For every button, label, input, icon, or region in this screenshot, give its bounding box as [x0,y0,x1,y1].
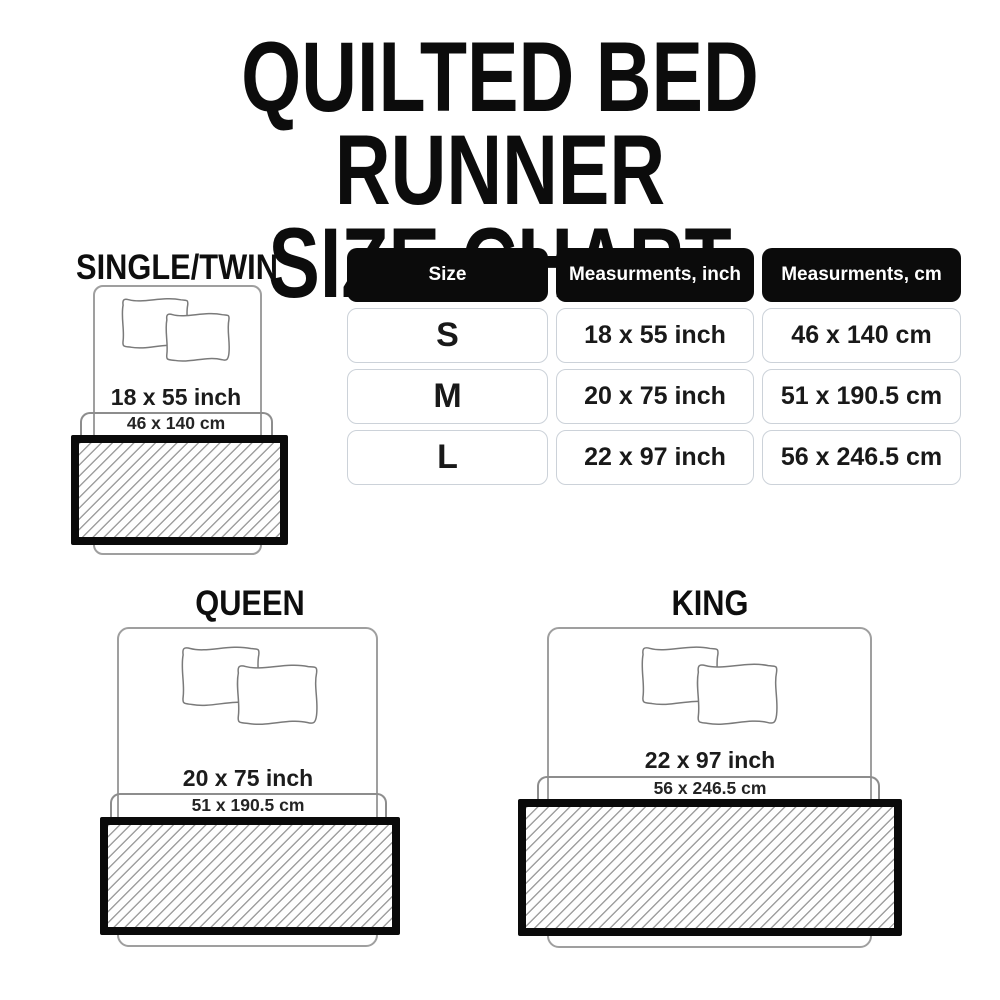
bed-runner [71,435,288,545]
queen-label: QUEEN [140,584,360,624]
header-cm-cell: Measurments, cm [762,248,961,302]
pillow-icon [691,661,783,728]
cm-measurement-label: 46 x 140 cm [56,414,296,433]
pillow-icon [231,662,323,728]
row-l-size-cell: L [347,430,548,485]
single-twin-diagram: SINGLE/TWIN 18 x 55 inch 46 x 140 cm [40,246,310,576]
row-s-size-cell: S [347,308,548,363]
bed-runner [518,799,902,936]
row-l-inch-cell: 22 x 97 inch [556,430,754,485]
header-size-cell: Size [347,248,548,302]
row-s-cm-cell: 46 x 140 cm [762,308,961,363]
size-chart-infographic: QUILTED BED RUNNER SIZE CHART SINGLE/TWI… [0,0,1000,1000]
inch-measurement-label: 22 x 97 inch [590,748,830,773]
bed-runner [100,817,400,935]
pillow-icon [161,311,234,364]
header-inch-cell: Measurments, inch [556,248,754,302]
row-s-inch-cell: 18 x 55 inch [556,308,754,363]
cm-measurement-label: 56 x 246.5 cm [590,779,830,798]
cm-measurement-label: 51 x 190.5 cm [128,796,368,815]
title-line-1: QUILTED BED RUNNER [110,30,890,216]
row-l-cm-cell: 56 x 246.5 cm [762,430,961,485]
king-label: KING [600,584,820,624]
row-m-inch-cell: 20 x 75 inch [556,369,754,424]
inch-measurement-label: 18 x 55 inch [56,385,296,410]
inch-measurement-label: 20 x 75 inch [128,766,368,791]
single-twin-label: SINGLE/TWIN [67,248,287,288]
row-m-size-cell: M [347,369,548,424]
king-diagram: KING 22 x 97 inch 56 x 246.5 cm [490,582,930,962]
row-m-cm-cell: 51 x 190.5 cm [762,369,961,424]
queen-diagram: QUEEN 20 x 75 inch 51 x 190.5 cm [60,582,450,962]
size-table: Size Measurments, inch Measurments, cm S… [347,248,961,485]
